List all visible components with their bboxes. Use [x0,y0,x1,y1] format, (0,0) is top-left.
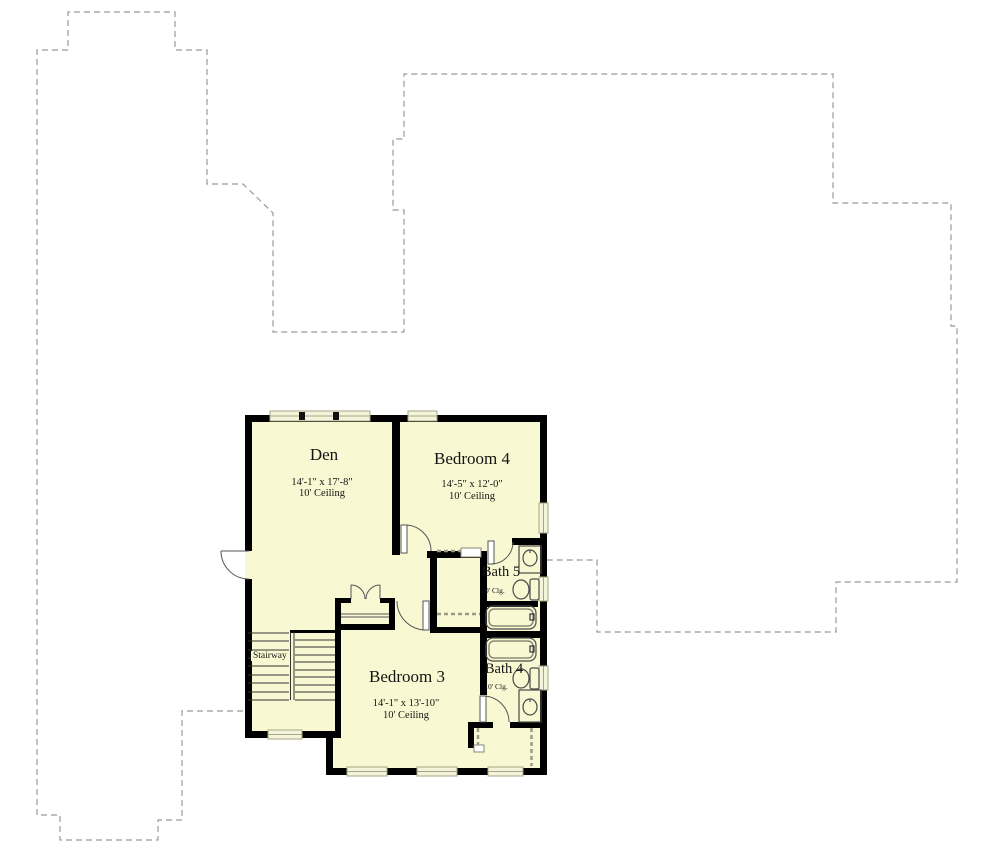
wall-left-step [326,738,333,771]
bath5-ceiling: 10' Clg. [481,587,504,595]
bedroom4-label: Bedroom 4 [434,450,510,468]
wall-b3closet-bottom [335,624,395,630]
second-floor-plan: Den 14'-1" x 17'-8" 10' Ceiling Bedroom … [0,0,1000,844]
wall-hall-closet-left [430,551,437,633]
window-bedroom3-bottom-1 [347,767,387,776]
closet-shelf-top [461,548,481,557]
bath4-label: Bath 4 [485,662,523,677]
floor-plan-drawing [0,0,1000,844]
wall-den-bedroom4 [392,415,400,555]
bedroom3-label: Bedroom 3 [369,668,445,686]
window-bedroom4-right [539,503,548,533]
bath5-label: Bath 5 [482,565,520,580]
wall-bath4-bottom-right [510,722,543,728]
bedroom4-ceiling: 10' Ceiling [449,491,495,502]
bath4-ceiling: 10' Clg. [484,683,507,691]
den-ceiling: 10' Ceiling [299,488,345,499]
closet-shelf-bottom [474,745,484,752]
den-label: Den [310,446,338,464]
den-dimensions: 14'-1" x 17'-8" [291,477,352,488]
wall-tub-divider [480,631,543,638]
window-bedroom3-bottom-2 [417,767,457,776]
door-den-exterior [221,551,249,579]
wall-b3closet-top-left [335,598,351,603]
bedroom3-dimensions: 14'-1" x 13'-10" [373,698,440,709]
window-bedroom4-top [408,411,437,421]
wall-b3closet-left [335,598,341,738]
wall-left-upper [245,415,252,551]
window-stair-bottom [268,730,302,739]
window-bedroom3-bottom-3 [488,767,523,776]
wall-hall-closet-bottom [430,627,487,633]
window-den-top [270,411,370,421]
window-bath5-right [539,577,548,601]
wall-bedroom4-bath5 [512,538,543,545]
bedroom3-ceiling: 10' Ceiling [383,710,429,721]
stair-landing-edge [290,630,341,633]
window-bath4-right [539,666,548,690]
wall-b3closet-top-right [380,598,395,603]
wall-closet-bottom [468,722,474,748]
bedroom4-dimensions: 14'-5" x 12'-0" [441,479,502,490]
stairway-label: Stairway [251,651,289,661]
